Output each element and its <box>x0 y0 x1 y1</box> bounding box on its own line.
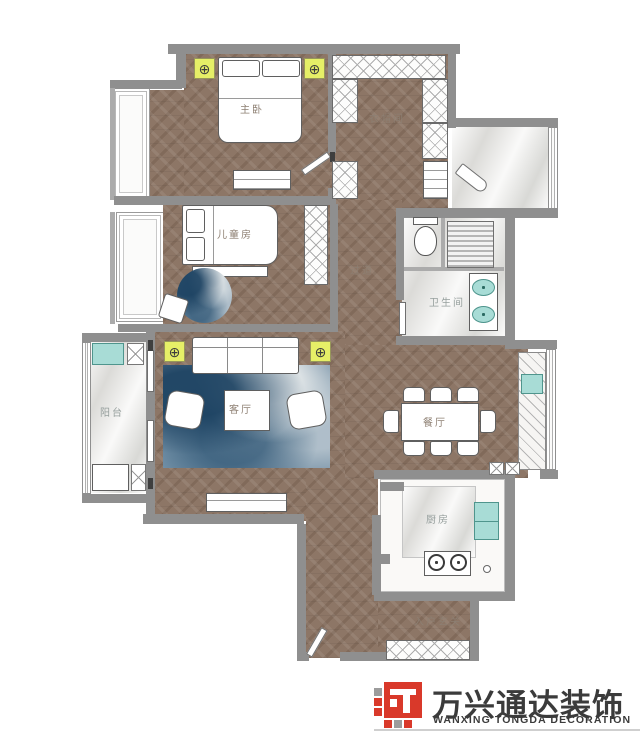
stove-burner <box>428 554 445 571</box>
toilet <box>414 226 437 256</box>
wall-entry-right <box>470 601 479 661</box>
wall-window-cap <box>540 470 558 479</box>
side-table-lamp-icon: ⊕ <box>164 341 185 362</box>
room-label-kitchen: 厨房 <box>403 511 473 526</box>
balcony-cabinet <box>131 464 146 491</box>
kitchen-sink <box>474 502 499 540</box>
laundry-sink <box>92 343 124 365</box>
room-label-bathroom: 卫生间 <box>412 294 482 309</box>
bathroom-door-leaf <box>399 302 406 335</box>
side-table-lamp-icon: ⊕ <box>310 341 331 362</box>
balcony-slider-panel <box>147 350 154 392</box>
room-label-balcony: 阳台 <box>83 404 141 419</box>
wall-bath-left <box>396 218 404 300</box>
wall-balcony-bottom <box>82 494 152 503</box>
dining-sideboard <box>518 352 546 470</box>
lamp-glyph: ⊕ <box>309 62 321 76</box>
closet-wardrobe-right <box>422 123 448 159</box>
wall-dining-ne <box>505 340 557 349</box>
dining-chair <box>403 387 425 402</box>
wall-closet-right <box>448 53 456 128</box>
closet-shelf <box>423 161 448 199</box>
children-wardrobe <box>304 205 328 285</box>
wall-master-children <box>114 196 336 205</box>
nightstand-lamp-icon: ⊕ <box>304 58 325 79</box>
pillow <box>262 60 300 77</box>
closet-wardrobe-right <box>422 79 448 123</box>
room-label-living: 客厅 <box>206 401 276 416</box>
stove-burner <box>450 554 467 571</box>
brand-divider <box>374 729 640 731</box>
room-label-entry: 入户玄关 <box>402 613 474 628</box>
wall-corridor-left <box>297 524 306 655</box>
brand-logo-icon <box>374 682 424 730</box>
dining-chair <box>403 441 425 456</box>
kitchen-wall-stub-bl <box>374 554 390 564</box>
balcony-slider-panel <box>147 420 154 462</box>
small-cabinet <box>505 462 520 475</box>
wall-top <box>168 44 460 54</box>
wall-children-outer <box>110 212 115 324</box>
door-frame-mark <box>148 478 153 489</box>
wall-flex-top <box>448 118 558 127</box>
tv-cabinet <box>206 493 287 512</box>
kitchen-fixture-dot <box>483 565 491 573</box>
balcony-cabinet <box>92 464 129 491</box>
logo-tile <box>374 708 382 716</box>
logo-tile <box>374 688 382 696</box>
kitchen-wall-stub-tl <box>380 482 404 491</box>
dining-chair <box>430 387 452 402</box>
master-bay-window <box>112 88 150 200</box>
wall-bath-right <box>505 208 515 348</box>
dining-chair <box>430 441 452 456</box>
logo-stroke <box>390 699 397 707</box>
logo-tile <box>394 720 402 728</box>
wall-bath-bottom <box>396 336 513 345</box>
dining-chair <box>457 387 479 402</box>
master-bench <box>233 170 291 190</box>
armchair <box>163 389 206 431</box>
logo-tile <box>384 720 392 728</box>
floor-plan: ⊕ ⊕ ⊕ ⊕ 主 <box>0 0 640 735</box>
room-label-master: 主卧 <box>212 101 292 116</box>
shower-area <box>447 221 494 268</box>
master-floor-left <box>150 90 186 200</box>
bath-partition-v <box>441 218 445 271</box>
corridor-floor <box>306 478 378 658</box>
room-label-hallway: 过道 <box>327 262 397 277</box>
wall-kitchen-right <box>505 479 515 601</box>
balcony-cabinet <box>127 343 144 365</box>
room-label-children: 儿童房 <box>195 226 275 241</box>
wall-topleft <box>110 80 182 89</box>
flex-window <box>548 127 558 209</box>
toilet-tank <box>413 217 438 225</box>
small-cabinet <box>489 462 504 475</box>
closet-wardrobe-top <box>332 55 446 79</box>
armchair <box>285 389 328 431</box>
logo-tile <box>404 720 412 728</box>
children-round-rug <box>177 268 232 323</box>
wall-kitchen-bottom <box>374 592 515 601</box>
sofa <box>192 337 299 374</box>
logo-stroke <box>403 695 410 713</box>
dining-chair <box>383 410 399 433</box>
brand-name-en: WANXING TONGDA DECORATION <box>433 714 631 726</box>
logo-main-square <box>384 682 422 718</box>
dining-chair <box>457 441 479 456</box>
children-bay-window <box>116 212 164 322</box>
room-label-dining: 餐厅 <box>400 414 470 429</box>
wall-master-outer <box>110 88 115 200</box>
dining-chair <box>480 410 496 433</box>
shoe-cabinet <box>386 640 470 660</box>
lamp-glyph: ⊕ <box>199 62 211 76</box>
lamp-glyph: ⊕ <box>315 345 327 359</box>
door-frame-mark <box>148 340 153 351</box>
lamp-glyph: ⊕ <box>169 345 181 359</box>
nightstand-lamp-icon: ⊕ <box>194 58 215 79</box>
aquarium-fixture <box>521 374 543 394</box>
wall-living-bottom <box>143 514 304 524</box>
logo-tile <box>374 698 382 706</box>
wall-balcony-top <box>82 333 152 342</box>
room-label-closet: 衣帽间 <box>352 110 422 125</box>
closet-wardrobe-left <box>332 161 358 199</box>
pillow <box>222 60 260 77</box>
dining-window <box>546 349 556 470</box>
